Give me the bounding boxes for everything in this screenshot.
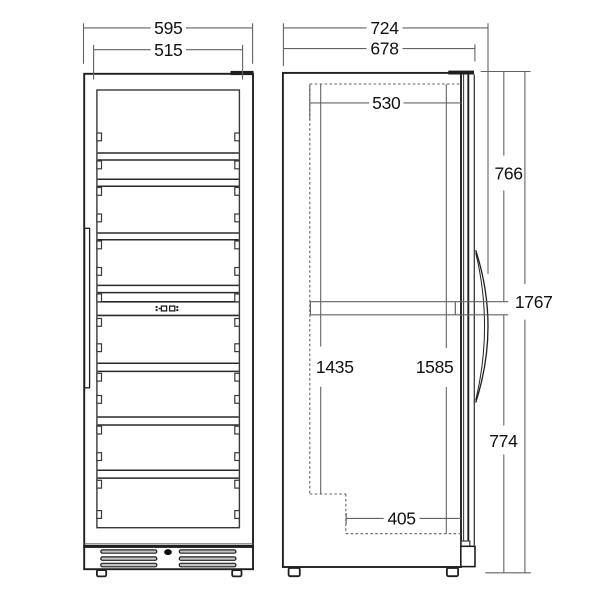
svg-text:1585: 1585 <box>416 357 454 377</box>
svg-text:1435: 1435 <box>316 357 354 377</box>
svg-text:405: 405 <box>387 508 415 528</box>
svg-text:530: 530 <box>372 93 401 113</box>
svg-text:774: 774 <box>489 431 518 451</box>
svg-text:595: 595 <box>154 18 182 38</box>
svg-text:1767: 1767 <box>515 292 553 312</box>
svg-text:724: 724 <box>370 18 399 38</box>
svg-text:515: 515 <box>154 40 182 60</box>
svg-text:766: 766 <box>494 163 522 183</box>
svg-text:678: 678 <box>370 39 398 59</box>
